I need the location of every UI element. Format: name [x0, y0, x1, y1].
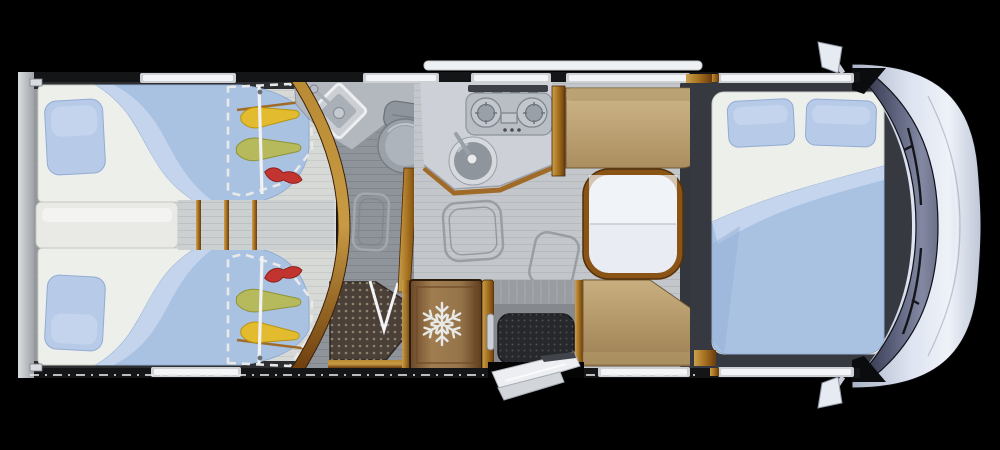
window-strip	[718, 367, 854, 377]
rear-bracket-bottom	[30, 364, 42, 371]
refrigerator	[402, 280, 494, 370]
rear-wall	[18, 72, 34, 378]
window-strip	[363, 73, 439, 83]
front-double-bed	[712, 92, 884, 354]
window-strip	[140, 73, 236, 83]
window-strip	[471, 73, 551, 83]
window-strip	[566, 73, 690, 83]
center-step-top	[42, 208, 172, 222]
folding-table	[583, 169, 683, 279]
wood-cap	[710, 368, 719, 376]
twin-bed-bottom	[38, 248, 317, 366]
window-strip	[718, 73, 854, 83]
floorplan-stage	[0, 0, 1000, 450]
dinette-wood-post	[552, 86, 565, 176]
shower-threshold	[328, 360, 408, 368]
rear-bedroom	[34, 80, 336, 370]
grab-handle	[487, 314, 494, 350]
wood-trim-top	[686, 74, 712, 83]
motorhome-floorplan	[0, 0, 1000, 450]
wood-trim-bottom	[694, 350, 716, 366]
rear-bracket-top	[30, 79, 42, 86]
awning-case	[424, 61, 702, 70]
basin-drain	[334, 108, 345, 119]
center-walkway	[178, 200, 334, 250]
twin-bed-top	[38, 84, 317, 202]
bench-wood-trim	[575, 280, 583, 366]
two-burner-hob	[466, 85, 552, 135]
